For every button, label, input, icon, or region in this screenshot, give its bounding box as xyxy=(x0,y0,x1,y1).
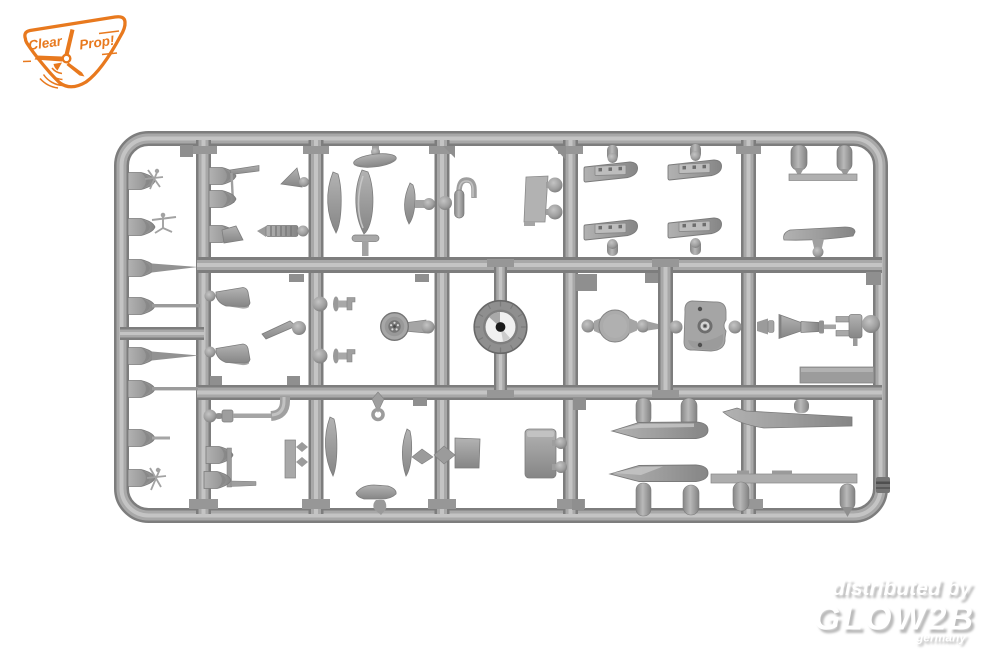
svg-text:distributed by: distributed by xyxy=(832,577,972,600)
svg-text:germany: germany xyxy=(915,631,967,645)
